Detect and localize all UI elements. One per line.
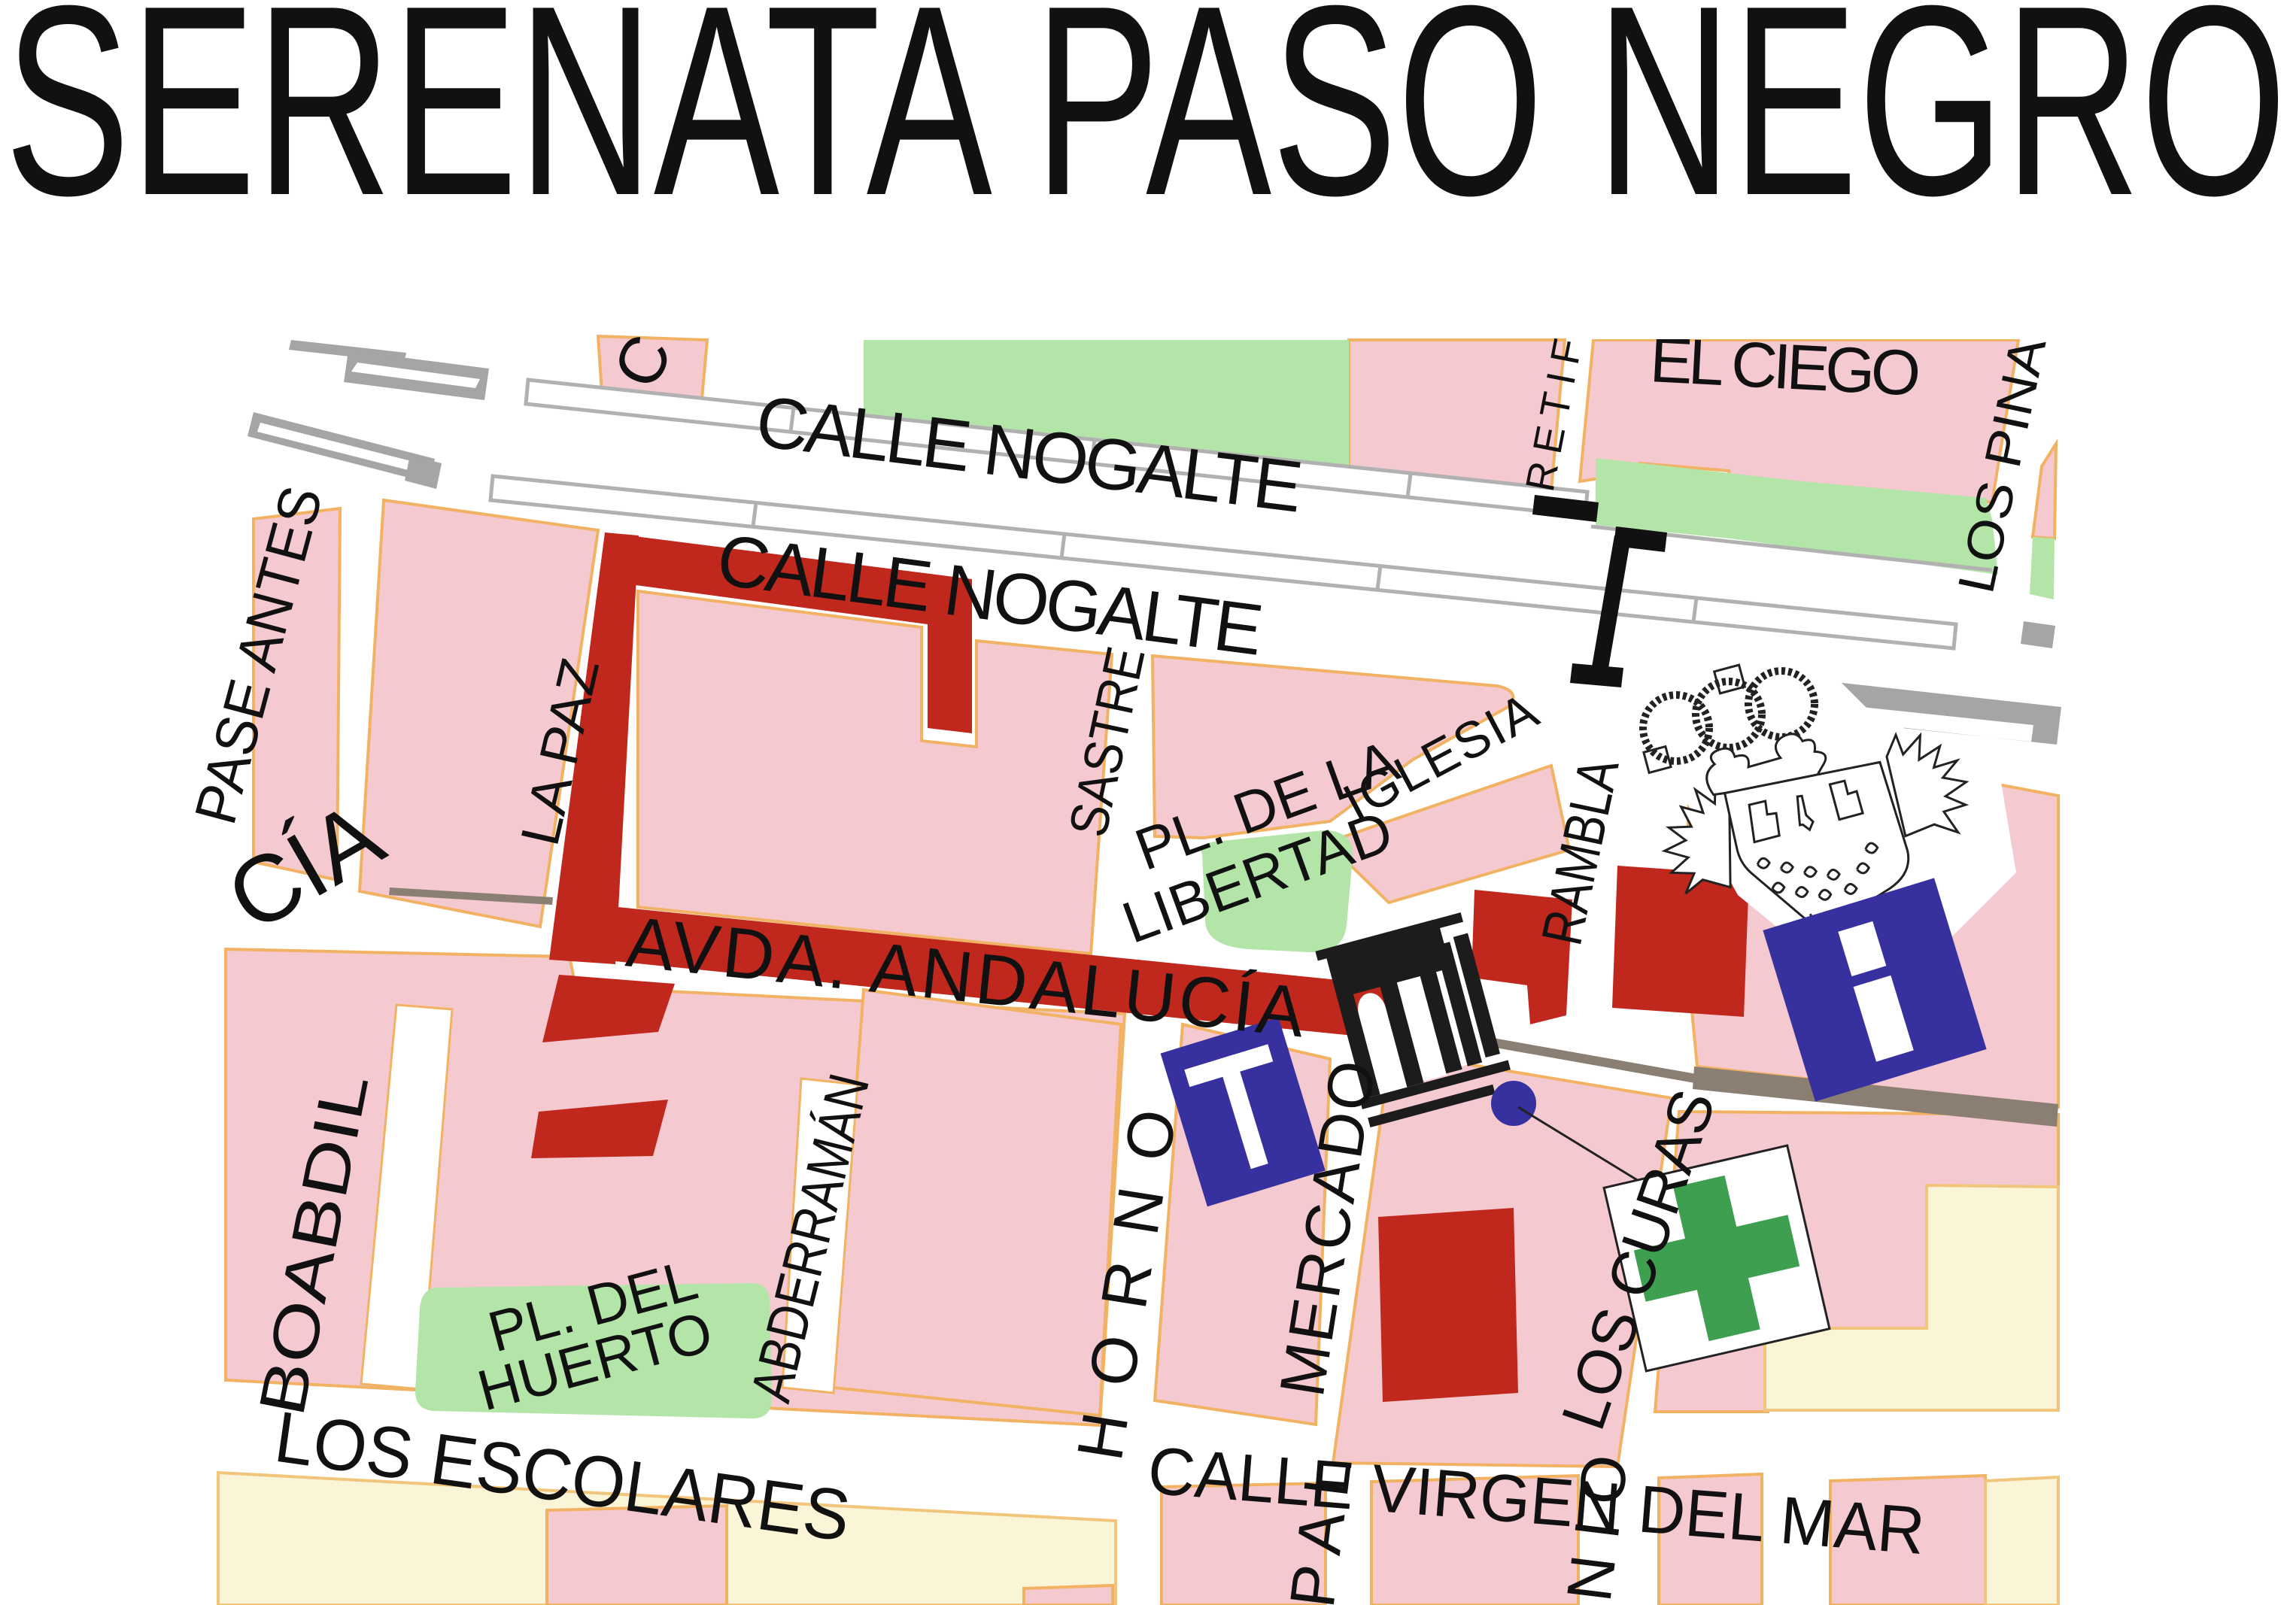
svg-text:SERENATA PASO NEGRO: SERENATA PASO NEGRO bbox=[5, 0, 2287, 252]
